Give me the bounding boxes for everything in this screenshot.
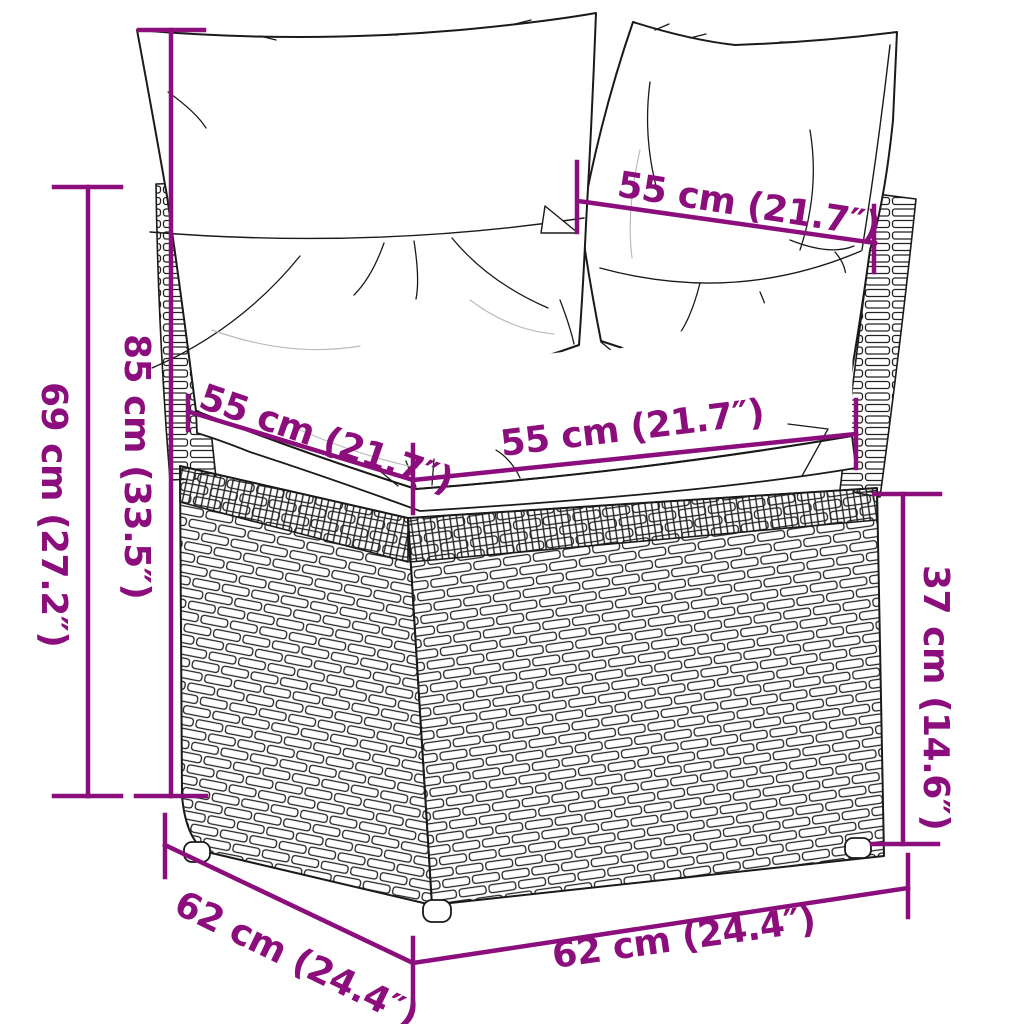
foot-front-center: [423, 900, 451, 922]
dimension-label-seat-height: 37 cm (14.6″): [915, 565, 956, 830]
dimension-frame-height: 69 cm (27.2″): [33, 187, 121, 796]
dimension-seat-height: 37 cm (14.6″): [872, 494, 956, 844]
dimension-label-cushion-height: 85 cm (33.5″): [116, 334, 157, 599]
diagram-canvas: 55 cm (21.7″) 85 cm (33.5″) 69 cm (27.2″…: [0, 0, 1024, 1024]
rattan-base: [180, 466, 884, 922]
foot-front-right: [845, 838, 871, 858]
dimension-label-base-width: 62 cm (24.4″): [550, 899, 818, 977]
dimension-label-base-depth: 62 cm (24.4″): [168, 883, 424, 1024]
back-cushion-left: [137, 13, 596, 411]
sofa-dimension-diagram: 55 cm (21.7″) 85 cm (33.5″) 69 cm (27.2″…: [0, 0, 1024, 1024]
dimension-label-frame-height: 69 cm (27.2″): [33, 382, 74, 647]
